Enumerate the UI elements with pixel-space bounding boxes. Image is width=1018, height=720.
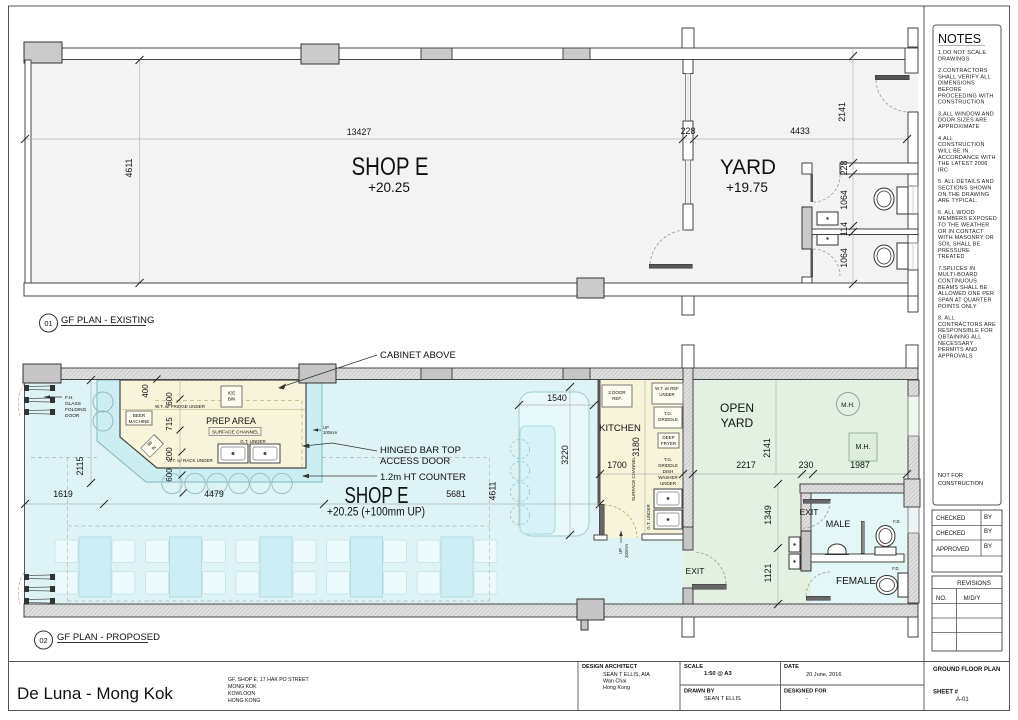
svg-text:1064: 1064 <box>839 248 849 268</box>
svg-text:SECTIONS SHOWN: SECTIONS SHOWN <box>938 185 992 191</box>
svg-text:YARD: YARD <box>720 155 776 179</box>
svg-text:715: 715 <box>165 417 174 431</box>
svg-text:TREATED: TREATED <box>938 254 965 260</box>
svg-text:228: 228 <box>681 126 696 136</box>
svg-text:HINGED BAR TOP: HINGED BAR TOP <box>380 445 461 456</box>
svg-text:DISH: DISH <box>663 469 674 474</box>
svg-text:DESIGNED FOR: DESIGNED FOR <box>784 689 827 695</box>
svg-text:2217: 2217 <box>736 460 756 470</box>
svg-text:ACCESS DOOR: ACCESS DOOR <box>380 456 450 467</box>
svg-text:DIMENSIONS: DIMENSIONS <box>938 81 975 87</box>
svg-text:SHALL VERIFY ALL: SHALL VERIFY ALL <box>938 74 991 80</box>
svg-text:APPROVED: APPROVED <box>936 547 970 553</box>
svg-text:GROUND FLOOR PLAN: GROUND FLOOR PLAN <box>933 667 1000 673</box>
svg-text:M/D/Y: M/D/Y <box>964 596 981 602</box>
svg-text:SCALE: SCALE <box>684 664 703 670</box>
svg-text:OR IN CONTACT: OR IN CONTACT <box>938 229 984 235</box>
svg-text:KITCHEN: KITCHEN <box>599 423 641 434</box>
svg-text:4433: 4433 <box>790 126 810 136</box>
svg-text:F.H.: F.H. <box>65 395 74 401</box>
svg-text:SHOP E: SHOP E <box>352 153 429 181</box>
svg-text:GF, SHOP E, 17 HAK PO STREET: GF, SHOP E, 17 HAK PO STREET <box>228 677 309 683</box>
svg-text:UP: UP <box>618 548 623 554</box>
svg-text:BEER: BEER <box>133 413 146 418</box>
svg-text:POINTS ONLY: POINTS ONLY <box>938 304 977 310</box>
svg-text:2141: 2141 <box>762 438 772 458</box>
svg-text:1:50 @ A3: 1:50 @ A3 <box>704 671 732 677</box>
svg-text:OBTAINING ALL: OBTAINING ALL <box>938 335 981 341</box>
svg-text:01: 01 <box>44 319 52 328</box>
svg-text:GF PLAN - PROPOSED: GF PLAN - PROPOSED <box>57 632 160 643</box>
svg-text:100mm: 100mm <box>624 544 629 558</box>
svg-text:MACHINE: MACHINE <box>129 419 150 424</box>
svg-text:DATE: DATE <box>784 664 799 670</box>
svg-text:BY: BY <box>984 544 992 550</box>
svg-text:1064: 1064 <box>839 190 849 210</box>
svg-text:Wan Chai: Wan Chai <box>603 679 626 685</box>
svg-text:APPROVALS: APPROVALS <box>938 354 973 360</box>
svg-text:DEEP: DEEP <box>662 435 674 440</box>
svg-text:T.G.: T.G. <box>664 411 672 416</box>
svg-text:OPEN: OPEN <box>720 401 754 415</box>
svg-text:F.D.: F.D. <box>893 519 900 524</box>
svg-text:WASHER: WASHER <box>658 475 678 480</box>
svg-text:1.DO NOT SCALE: 1.DO NOT SCALE <box>938 50 986 56</box>
svg-text:3.ALL WINDOW AND: 3.ALL WINDOW AND <box>938 111 994 117</box>
svg-text:2 DOOR: 2 DOOR <box>608 390 626 395</box>
svg-text:GLASS: GLASS <box>65 401 81 407</box>
svg-text:5681: 5681 <box>446 489 466 499</box>
svg-text:NOT FOR: NOT FOR <box>938 473 963 479</box>
svg-text:8. ALL: 8. ALL <box>938 316 955 322</box>
svg-text:BEFORE: BEFORE <box>938 87 962 93</box>
svg-text:2141: 2141 <box>837 102 847 122</box>
svg-text:CONSTRUCTION: CONSTRUCTION <box>938 481 983 487</box>
svg-text:CONTINUOUS: CONTINUOUS <box>938 279 977 285</box>
svg-text:W.T. w/ RACK UNDER: W.T. w/ RACK UNDER <box>167 458 213 463</box>
svg-text:APPROXIMATE: APPROXIMATE <box>938 124 980 130</box>
svg-text:DRAWN BY: DRAWN BY <box>684 689 715 695</box>
svg-text:-: - <box>806 696 808 702</box>
svg-text:SEAN T ELLIS: SEAN T ELLIS <box>704 696 741 702</box>
svg-text:UNDER: UNDER <box>659 392 674 397</box>
svg-text:GRIDDLE: GRIDDLE <box>658 463 678 468</box>
svg-text:CABINET ABOVE: CABINET ABOVE <box>380 350 456 361</box>
svg-text:SEAN T ELLIS, AIA: SEAN T ELLIS, AIA <box>603 672 650 678</box>
svg-text:FEMALE: FEMALE <box>836 576 876 587</box>
svg-text:4611: 4611 <box>124 158 134 177</box>
svg-text:230: 230 <box>799 460 814 470</box>
svg-text:EXIT: EXIT <box>800 507 819 517</box>
svg-text:GF PLAN - EXISTING: GF PLAN - EXISTING <box>61 315 154 326</box>
svg-text:2.CONTRACTORS: 2.CONTRACTORS <box>938 68 988 74</box>
svg-text:SURFACE CHANNEL: SURFACE CHANNEL <box>631 457 636 502</box>
svg-text:SURFACE CHANNEL: SURFACE CHANNEL <box>212 429 259 435</box>
svg-text:M.H.: M.H. <box>856 444 871 451</box>
svg-text:SOIL SHALL BE: SOIL SHALL BE <box>938 241 981 247</box>
svg-text:WILL BE IN: WILL BE IN <box>938 148 969 154</box>
svg-text:200: 200 <box>165 447 174 461</box>
svg-text:MULTI-BOARD: MULTI-BOARD <box>938 272 978 278</box>
svg-text:REF.: REF. <box>612 396 622 401</box>
svg-text:Hong Kong: Hong Kong <box>603 685 630 691</box>
svg-text:1987: 1987 <box>850 460 870 470</box>
svg-text:RESPONSIBLE FOR: RESPONSIBLE FOR <box>938 328 993 334</box>
svg-text:DOOR SIZES ARE: DOOR SIZES ARE <box>938 118 987 124</box>
svg-text:A-01: A-01 <box>956 697 969 703</box>
svg-text:G.T. UNDER: G.T. UNDER <box>240 439 266 444</box>
svg-text:100mm: 100mm <box>323 430 337 435</box>
svg-text:CONSTRUCTION: CONSTRUCTION <box>938 100 985 106</box>
svg-text:1121: 1121 <box>763 563 773 582</box>
svg-text:KOWLOON: KOWLOON <box>228 691 255 697</box>
svg-text:20 June, 2016: 20 June, 2016 <box>806 672 841 678</box>
svg-text:7.SPLICES IN: 7.SPLICES IN <box>938 266 975 272</box>
svg-text:CHECKED: CHECKED <box>936 516 966 522</box>
svg-text:1540: 1540 <box>547 393 567 403</box>
svg-text:G.T. UNDER: G.T. UNDER <box>646 504 651 530</box>
svg-text:CONTRACTORS ARE: CONTRACTORS ARE <box>938 322 996 328</box>
svg-text:EXIT: EXIT <box>686 566 705 576</box>
svg-text:NECESSARY: NECESSARY <box>938 341 974 347</box>
svg-text:MONG KOK: MONG KOK <box>228 684 257 690</box>
svg-text:DRAWINGS: DRAWINGS <box>938 56 970 62</box>
svg-text:6. ALL WOOD: 6. ALL WOOD <box>938 210 975 216</box>
svg-text:4479: 4479 <box>204 489 224 499</box>
svg-text:4.ALL: 4.ALL <box>938 136 953 142</box>
svg-text:ON THE DRAWING: ON THE DRAWING <box>938 192 989 198</box>
svg-text:UNDER: UNDER <box>660 481 677 486</box>
svg-text:600: 600 <box>165 468 174 482</box>
svg-text:5. ALL DETAILS AND: 5. ALL DETAILS AND <box>938 179 994 185</box>
svg-text:FOLDING: FOLDING <box>65 407 87 413</box>
svg-text:13427: 13427 <box>347 127 372 137</box>
svg-text:CHECKED: CHECKED <box>936 531 966 537</box>
svg-text:W.T. w/ FRIDGE UNDER: W.T. w/ FRIDGE UNDER <box>155 404 206 409</box>
svg-text:NO.: NO. <box>936 596 947 602</box>
svg-text:BIN: BIN <box>228 397 236 402</box>
svg-text:+20.25: +20.25 <box>368 180 410 195</box>
svg-text:ACCORDANCE WITH: ACCORDANCE WITH <box>938 155 996 161</box>
svg-text:3220: 3220 <box>560 445 570 465</box>
svg-text:4611: 4611 <box>488 481 498 500</box>
svg-text:114: 114 <box>839 222 849 236</box>
svg-text:NOTES: NOTES <box>938 32 981 46</box>
svg-text:YARD: YARD <box>721 416 754 430</box>
svg-text:SHEET #: SHEET # <box>933 690 959 696</box>
svg-text:PRESSURE: PRESSURE <box>938 248 970 254</box>
svg-text:600: 600 <box>165 392 174 406</box>
svg-text:MALE: MALE <box>826 519 851 529</box>
svg-text:De Luna - Mong Kok: De Luna - Mong Kok <box>17 684 173 703</box>
svg-text:PERMITS AND: PERMITS AND <box>938 347 977 353</box>
svg-text:02: 02 <box>39 636 47 645</box>
svg-text:DESIGN ARCHITECT: DESIGN ARCHITECT <box>582 664 638 670</box>
svg-text:BEAMS SHALL BE: BEAMS SHALL BE <box>938 285 988 291</box>
svg-text:2115: 2115 <box>75 456 85 475</box>
svg-text:REVISIONS: REVISIONS <box>957 580 991 587</box>
svg-text:ARE TYPICAL.: ARE TYPICAL. <box>938 198 978 204</box>
svg-text:T.G.: T.G. <box>664 457 672 462</box>
svg-text:SPAN AT QUARTER: SPAN AT QUARTER <box>938 298 992 304</box>
svg-text:MEMBERS EXPOSED: MEMBERS EXPOSED <box>938 216 997 222</box>
svg-text:F.D.: F.D. <box>892 566 899 571</box>
svg-text:CONSTRUCTION: CONSTRUCTION <box>938 142 985 148</box>
svg-text:TO THE WEATHER: TO THE WEATHER <box>938 222 989 228</box>
svg-text:ALLOWED ONE PER: ALLOWED ONE PER <box>938 291 994 297</box>
svg-text:1349: 1349 <box>763 505 773 525</box>
svg-text:PROCEEDING WITH: PROCEEDING WITH <box>938 93 994 99</box>
svg-text:228: 228 <box>839 161 849 176</box>
svg-text:PREP AREA: PREP AREA <box>206 416 256 426</box>
svg-text:GRIDDLE: GRIDDLE <box>658 417 678 422</box>
svg-text:FRYER: FRYER <box>661 441 677 446</box>
svg-text:+19.75: +19.75 <box>726 180 768 195</box>
svg-text:BY: BY <box>984 529 992 535</box>
svg-text:IRC: IRC <box>938 167 948 173</box>
svg-text:ICE: ICE <box>228 391 236 396</box>
svg-text:400: 400 <box>141 384 150 398</box>
svg-text:W.T. w/ REF: W.T. w/ REF <box>655 386 679 391</box>
svg-text:DOOR: DOOR <box>65 413 80 419</box>
svg-text:WITH MASONRY OR: WITH MASONRY OR <box>938 235 994 241</box>
svg-text:BY: BY <box>984 515 992 521</box>
svg-text:THE LATEST 2006: THE LATEST 2006 <box>938 161 988 167</box>
svg-text:+20.25 (+100mm UP): +20.25 (+100mm UP) <box>327 505 425 519</box>
svg-text:M.H.: M.H. <box>841 402 855 409</box>
svg-text:HONG KONG: HONG KONG <box>228 698 260 704</box>
svg-text:1619: 1619 <box>53 489 73 499</box>
svg-text:1700: 1700 <box>607 460 627 470</box>
svg-text:3180: 3180 <box>631 437 641 457</box>
